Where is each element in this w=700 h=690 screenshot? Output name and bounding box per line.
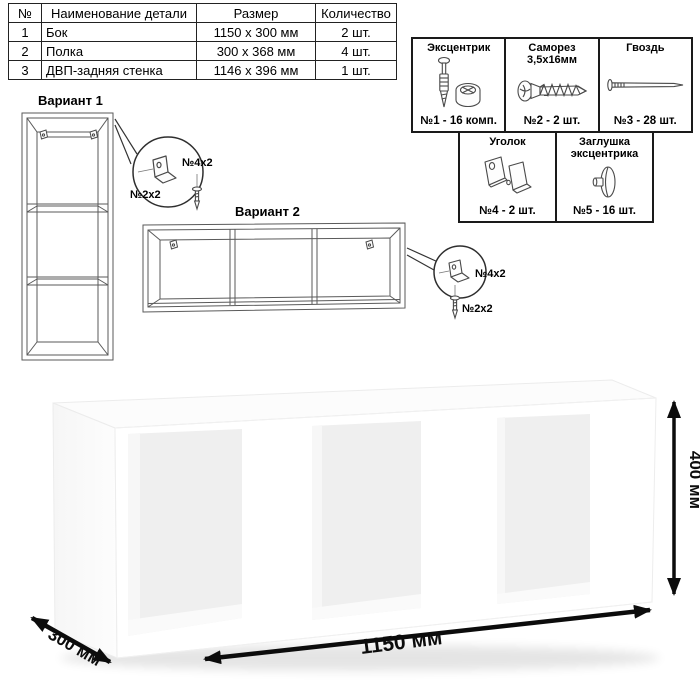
mounting-bracket-small: [90, 130, 98, 139]
variant2-drawing: №4х2 №2х2: [140, 200, 532, 332]
cell-qty: 2 шт.: [316, 23, 397, 42]
variant2-callout: №4х2 №2х2: [407, 246, 506, 318]
hardware-box-row1: Эксцентрик №1 - 16 комп.: [411, 37, 693, 133]
compartment-opening: [128, 429, 242, 636]
compartment-opening: [312, 421, 421, 620]
table-row: 3 ДВП-задняя стенка 1146 х 396 мм 1 шт.: [9, 61, 397, 80]
bracket-qty-label: №4х2: [475, 268, 506, 280]
compartment-opening: [497, 414, 590, 604]
header-qty: Количество: [316, 4, 397, 23]
corner-bracket-icon: [479, 148, 537, 205]
cell-name: ДВП-задняя стенка: [42, 61, 197, 80]
parts-table-header-row: № Наименование детали Размер Количество: [9, 4, 397, 23]
vertical-shelf-outline: [22, 113, 113, 360]
hardware-count: №5 - 16 шт.: [573, 205, 636, 217]
cam-cap-icon: [590, 161, 620, 205]
shelf-unit-body: [53, 380, 656, 658]
hardware-count: №2 - 2 шт.: [524, 115, 580, 127]
cell-size: 1146 х 396 мм: [197, 61, 316, 80]
cell-num: 2: [9, 42, 42, 61]
cell-name: Бок: [42, 23, 197, 42]
cell-qty: 4 шт.: [316, 42, 397, 61]
cell-name: Полка: [42, 42, 197, 61]
cell-num: 3: [9, 61, 42, 80]
nail-icon: [604, 54, 686, 115]
cell-size: 1150 х 300 мм: [197, 23, 316, 42]
hardware-cell-eccentric: Эксцентрик №1 - 16 комп.: [413, 39, 504, 131]
height-dimension-label: 400 мм: [686, 451, 700, 509]
table-row: 1 Бок 1150 х 300 мм 2 шт.: [9, 23, 397, 42]
hardware-title: Гвоздь: [626, 42, 664, 54]
horizontal-shelf-outline: [143, 223, 405, 312]
screw-icon: [514, 67, 590, 115]
hardware-title: Уголок: [489, 136, 525, 148]
hardware-count: №3 - 28 шт.: [614, 115, 677, 127]
hardware-cell-nail: Гвоздь №3 - 28 шт.: [598, 39, 691, 131]
cell-qty: 1 шт.: [316, 61, 397, 80]
hardware-count: №1 - 16 комп.: [420, 115, 497, 127]
hardware-title: Саморез 3,5х16мм: [508, 42, 595, 67]
cam-lock-icon: [433, 54, 485, 115]
bracket-qty-label: №4х2: [182, 157, 213, 169]
header-num: №: [9, 4, 42, 23]
hardware-title: Заглушка эксцентрика: [559, 136, 650, 161]
hardware-cell-cap: Заглушка эксцентрика №5 - 16 шт.: [555, 133, 652, 221]
table-row: 2 Полка 300 х 368 мм 4 шт.: [9, 42, 397, 61]
assembly-instruction-sheet: { "parts_table": { "headers": ["№", "Наи…: [0, 0, 700, 690]
parts-table: № Наименование детали Размер Количество …: [8, 3, 397, 80]
header-size: Размер: [197, 4, 316, 23]
screw-qty-label: №2х2: [462, 303, 493, 315]
mounting-bracket-small: [170, 240, 178, 249]
hardware-title: Эксцентрик: [427, 42, 490, 54]
cell-size: 300 х 368 мм: [197, 42, 316, 61]
variant1-callout: №4х2 №2х2: [115, 119, 213, 209]
header-name: Наименование детали: [42, 4, 197, 23]
mounting-bracket-small: [40, 130, 48, 139]
hardware-cell-screw: Саморез 3,5х16мм №2 - 2 шт.: [504, 39, 597, 131]
mounting-bracket-small: [366, 240, 374, 249]
cell-num: 1: [9, 23, 42, 42]
shelf-3d-render: 1150 мм 300 мм 400 мм: [0, 368, 700, 690]
